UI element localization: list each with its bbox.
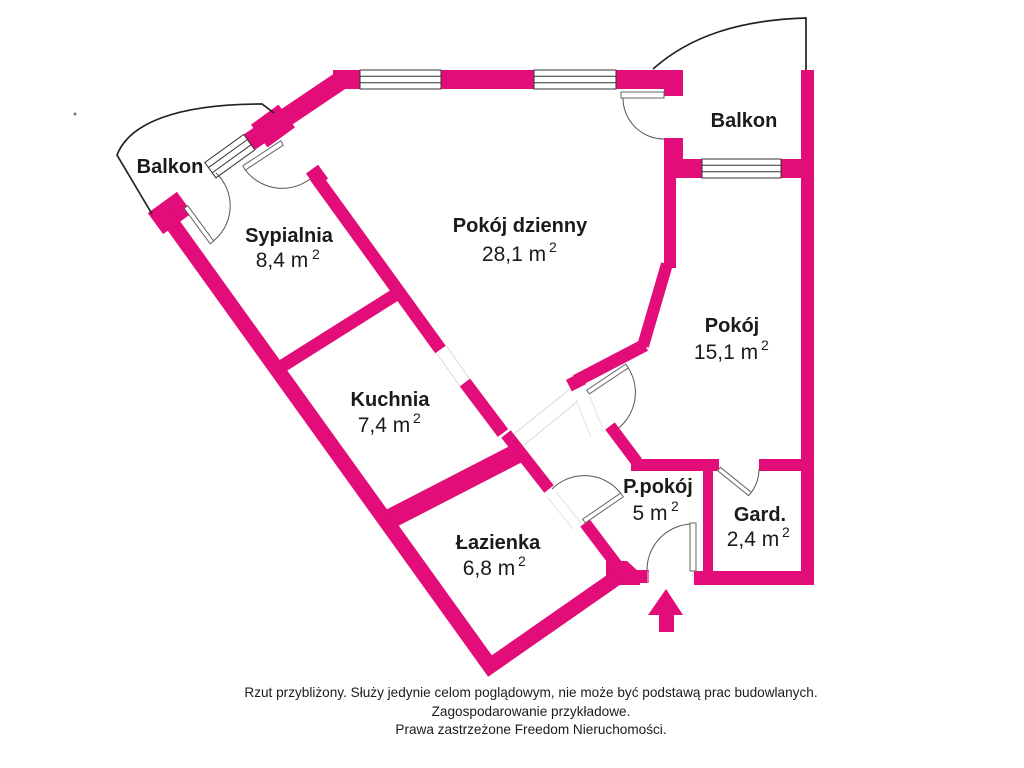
svg-text:Pokój: Pokój	[705, 315, 759, 337]
svg-text:2: 2	[312, 246, 320, 262]
svg-text:Pokój dzienny: Pokój dzienny	[453, 215, 588, 237]
svg-text:Łazienka: Łazienka	[456, 532, 541, 554]
svg-text:28,1 m: 28,1 m	[482, 243, 546, 266]
svg-text:Zagospodarowanie przykładowe.: Zagospodarowanie przykładowe.	[432, 704, 631, 719]
svg-text:Rzut przybliżony. Służy jedyni: Rzut przybliżony. Służy jedynie celom po…	[244, 685, 817, 700]
svg-text:P.pokój: P.pokój	[623, 476, 693, 498]
svg-text:2: 2	[549, 239, 557, 255]
svg-text:Balkon: Balkon	[137, 156, 204, 178]
svg-text:2: 2	[671, 498, 679, 514]
svg-text:Sypialnia: Sypialnia	[245, 225, 334, 247]
svg-text:Gard.: Gard.	[734, 504, 786, 526]
svg-text:2: 2	[761, 337, 769, 353]
svg-text:5 m: 5 m	[632, 502, 667, 525]
svg-text:2: 2	[413, 410, 421, 426]
svg-text:Kuchnia: Kuchnia	[351, 389, 431, 411]
svg-text:7,4 m: 7,4 m	[358, 414, 411, 437]
svg-text:6,8 m: 6,8 m	[463, 557, 516, 580]
svg-text:2: 2	[782, 524, 790, 540]
svg-text:2: 2	[518, 553, 526, 569]
svg-text:2,4 m: 2,4 m	[727, 528, 780, 551]
svg-text:15,1 m: 15,1 m	[694, 341, 758, 364]
svg-text:Balkon: Balkon	[711, 110, 778, 132]
svg-text:Prawa zastrzeżone Freedom Nier: Prawa zastrzeżone Freedom Nieruchomości.	[395, 722, 666, 737]
svg-text:8,4 m: 8,4 m	[256, 249, 309, 272]
